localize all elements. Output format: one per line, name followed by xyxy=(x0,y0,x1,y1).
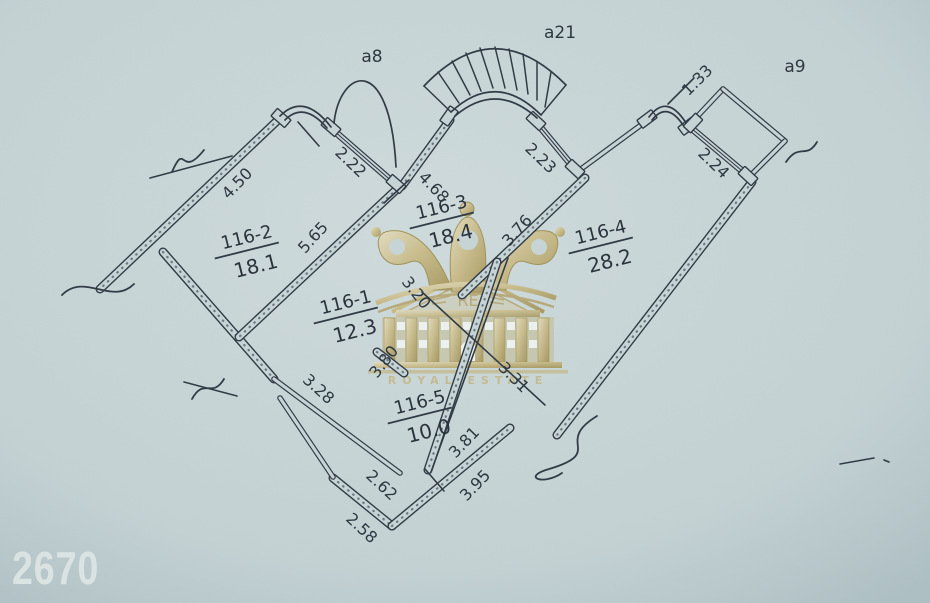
balcony-label: а9 xyxy=(784,57,805,77)
scanned-floor-plan-photo: RE xyxy=(0,0,930,603)
photo-corner-number: 2670 xyxy=(12,541,99,595)
floor-plan-canvas: RE xyxy=(0,0,930,603)
balcony-label: а21 xyxy=(544,23,576,43)
balcony-label: а8 xyxy=(361,47,382,67)
